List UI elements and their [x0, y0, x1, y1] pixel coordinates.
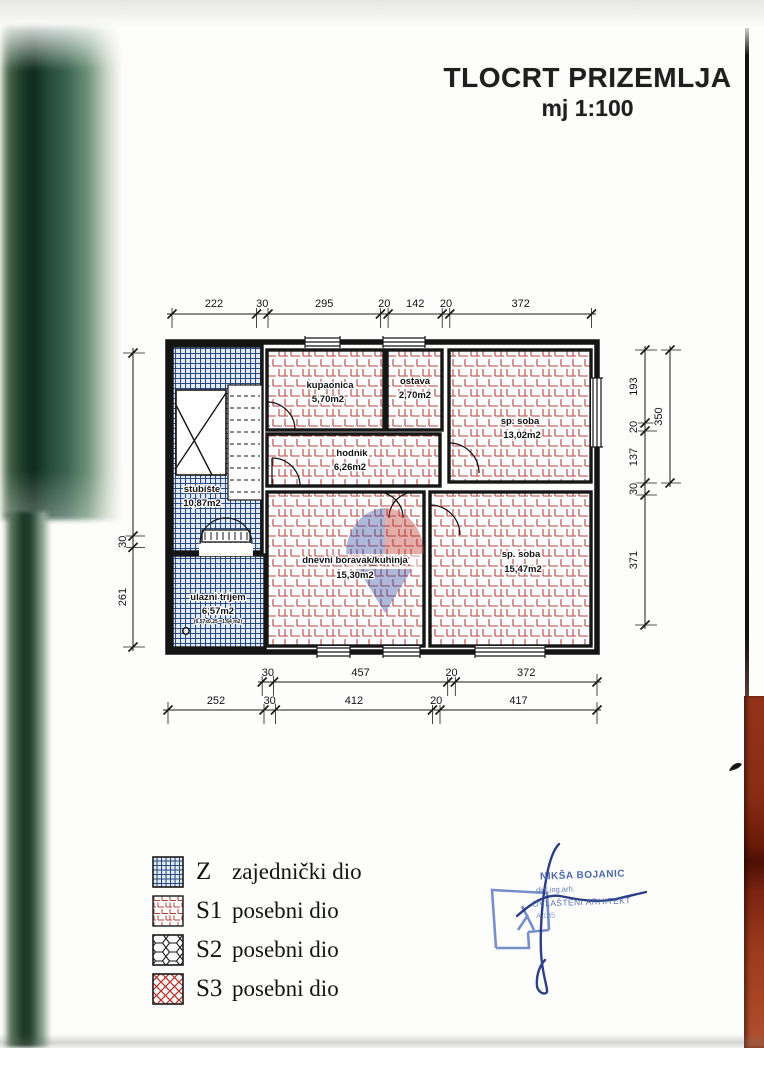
dim-bu-3: 372: [517, 667, 535, 679]
legend-label-s2: posebni dio: [232, 937, 339, 963]
stamp-architect-number: A 135: [536, 911, 555, 921]
dim-top-3: 20: [378, 298, 390, 310]
dim-right-0: 193: [628, 377, 640, 395]
dim-bl-0: 252: [207, 695, 225, 707]
label-dnevni: dnevni boravak/kuhinja: [302, 555, 408, 566]
dim-right-2: 137: [628, 448, 640, 466]
area-ostava: 2,70m2: [399, 390, 431, 401]
legend-row-s1: S1 posebni dio: [152, 895, 362, 927]
window-top-1: [305, 336, 340, 348]
dim-left-1: 261: [117, 588, 129, 606]
window-bottom-2: [383, 646, 420, 658]
legend-label-z: zajednički dio: [232, 859, 362, 885]
dim-right-1: 20: [628, 421, 640, 433]
dim-bl-4: 417: [509, 695, 527, 707]
window-right: [591, 378, 603, 447]
label-sp-soba-1: sp. soba: [501, 416, 540, 427]
area-kupaonica: 5,70m2: [312, 394, 344, 405]
dim-bl-2: 412: [345, 695, 363, 707]
label-sp-soba-2: sp. soba: [502, 549, 541, 560]
plan-circle-symbol: [183, 628, 189, 634]
note-ulazni-trijem: (6,57x0,25 =1,64 m2): [194, 619, 243, 625]
area-ulazni-trijem: 6,57m2: [202, 606, 234, 617]
dim-bu-0: 30: [262, 667, 274, 679]
dim-top-5: 20: [440, 298, 452, 310]
paper-right-edge-line: [745, 28, 749, 704]
area-sp-soba-1: 13,02m2: [503, 430, 541, 441]
legend-code-s2: S2: [196, 936, 232, 964]
scan-top-edge: [0, 0, 764, 27]
dim-bu-2: 20: [445, 667, 457, 679]
legend-swatch-s3-crosshatch: [152, 973, 184, 1005]
legend-swatch-s1-bracket: [152, 895, 184, 927]
legend-code-s3: S3: [196, 975, 232, 1003]
dim-chain-top: [167, 308, 596, 328]
legend-code-z: Z: [196, 858, 232, 886]
drawing-scale: mj 1:100: [435, 95, 740, 122]
room-hodnik: [267, 434, 440, 486]
label-ulazni-trijem: ulazni trijem: [190, 592, 245, 603]
dim-chain-bottom-lower: [163, 702, 602, 724]
legend-row-s2: S2 posebni dio: [152, 934, 362, 966]
pen-flick-mark: [720, 755, 750, 781]
scan-shadow-band-narrow: [3, 512, 51, 1047]
stamp-graphics: [478, 838, 708, 998]
dim-chain-bottom-upper: [258, 674, 602, 696]
floor-plan-drawing: REMAX kupaonica 5,70m2 ostava 2,70m2 sp.…: [115, 278, 715, 738]
legend-swatch-z-grid: [152, 856, 184, 888]
architect-stamp: NIKŠA BOJANIC dipl.ing.arh. OVLAŠTENI AR…: [478, 838, 708, 998]
dim-top-1: 30: [256, 298, 268, 310]
background-below-paper: [0, 1048, 764, 1080]
window-bottom-3: [475, 646, 545, 658]
stamp-architect-degree: dipl.ing.arh.: [536, 884, 575, 894]
label-stubiste: stubište: [184, 484, 220, 495]
legend-code-s1: S1: [196, 897, 232, 925]
dim-right-outer-0: 350: [653, 407, 665, 425]
dim-right-3: 30: [628, 483, 640, 495]
area-sp-soba-2: 15,47m2: [504, 564, 542, 575]
legend: Z zajednički dio S1 posebni dio S2 pose: [152, 856, 362, 1012]
dim-left-0: 30: [117, 536, 129, 548]
dim-bl-3: 20: [430, 695, 442, 707]
area-dnevni: 15,30m2: [336, 570, 374, 581]
drawing-title-block: TLOCRT PRIZEMLJA mj 1:100: [435, 62, 740, 122]
label-ostava: ostava: [400, 376, 431, 387]
legend-row-s3: S3 posebni dio: [152, 973, 362, 1005]
legend-row-z: Z zajednički dio: [152, 856, 362, 888]
dim-top-2: 295: [315, 298, 333, 310]
drawing-title: TLOCRT PRIZEMLJA: [435, 62, 740, 94]
window-bottom-1: [317, 646, 350, 658]
dim-bl-1: 30: [264, 695, 276, 707]
area-stubiste: 10,87m2: [183, 498, 221, 509]
scan-shadow-band-wide: [0, 26, 122, 520]
wood-table-edge: [744, 696, 764, 1048]
legend-swatch-s2-hex: [152, 934, 184, 966]
window-top-2: [383, 336, 425, 348]
label-kupaonica: kupaonica: [307, 380, 355, 391]
label-hodnik: hodnik: [336, 448, 368, 459]
dim-right-4: 371: [628, 551, 640, 569]
area-hodnik: 6,26m2: [334, 462, 366, 473]
dim-top-0: 222: [205, 298, 223, 310]
legend-label-s3: posebni dio: [232, 976, 339, 1002]
dim-bu-1: 457: [351, 667, 369, 679]
scanned-floor-plan-page: { "title": { "main": "TLOCRT PRIZEMLJA",…: [0, 0, 764, 1080]
legend-label-s1: posebni dio: [232, 898, 339, 924]
dim-top-6: 372: [512, 298, 530, 310]
dim-top-4: 142: [406, 298, 424, 310]
